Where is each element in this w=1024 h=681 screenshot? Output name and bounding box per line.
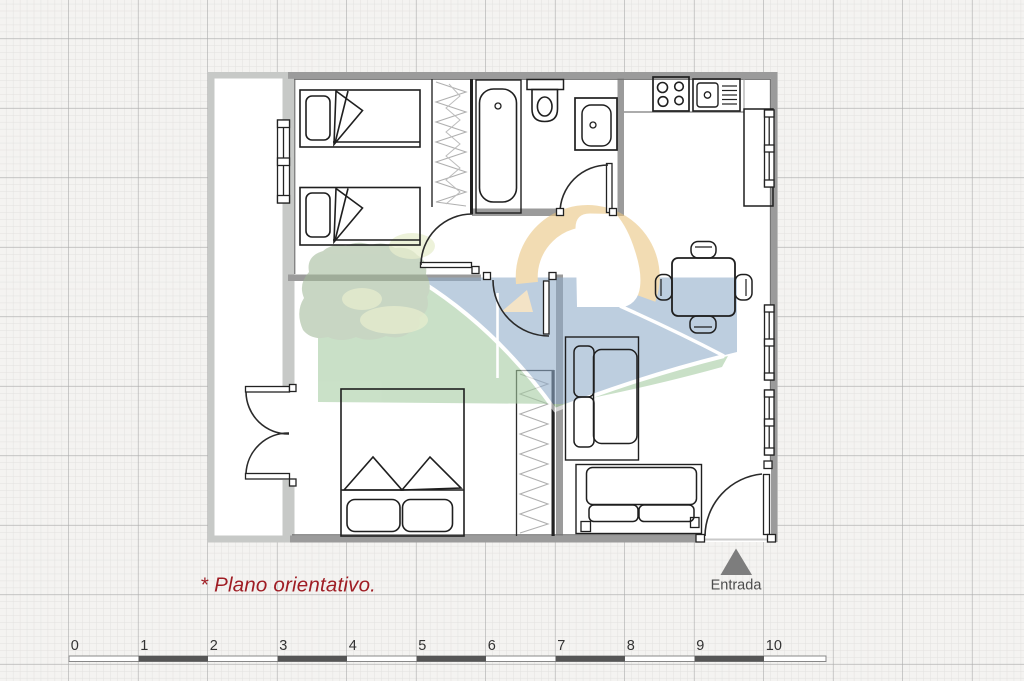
svg-text:4: 4 xyxy=(349,638,357,654)
svg-text:5: 5 xyxy=(418,638,426,654)
svg-text:8: 8 xyxy=(627,638,635,654)
svg-text:0: 0 xyxy=(71,638,79,654)
svg-text:Entrada: Entrada xyxy=(711,578,763,594)
svg-text:9: 9 xyxy=(696,638,704,654)
svg-text:10: 10 xyxy=(766,638,782,654)
svg-text:* Plano orientativo.: * Plano orientativo. xyxy=(200,574,376,597)
svg-text:6: 6 xyxy=(488,638,496,654)
svg-text:1: 1 xyxy=(140,638,148,654)
svg-text:2: 2 xyxy=(210,638,218,654)
svg-text:7: 7 xyxy=(557,638,565,654)
svg-text:3: 3 xyxy=(279,638,287,654)
